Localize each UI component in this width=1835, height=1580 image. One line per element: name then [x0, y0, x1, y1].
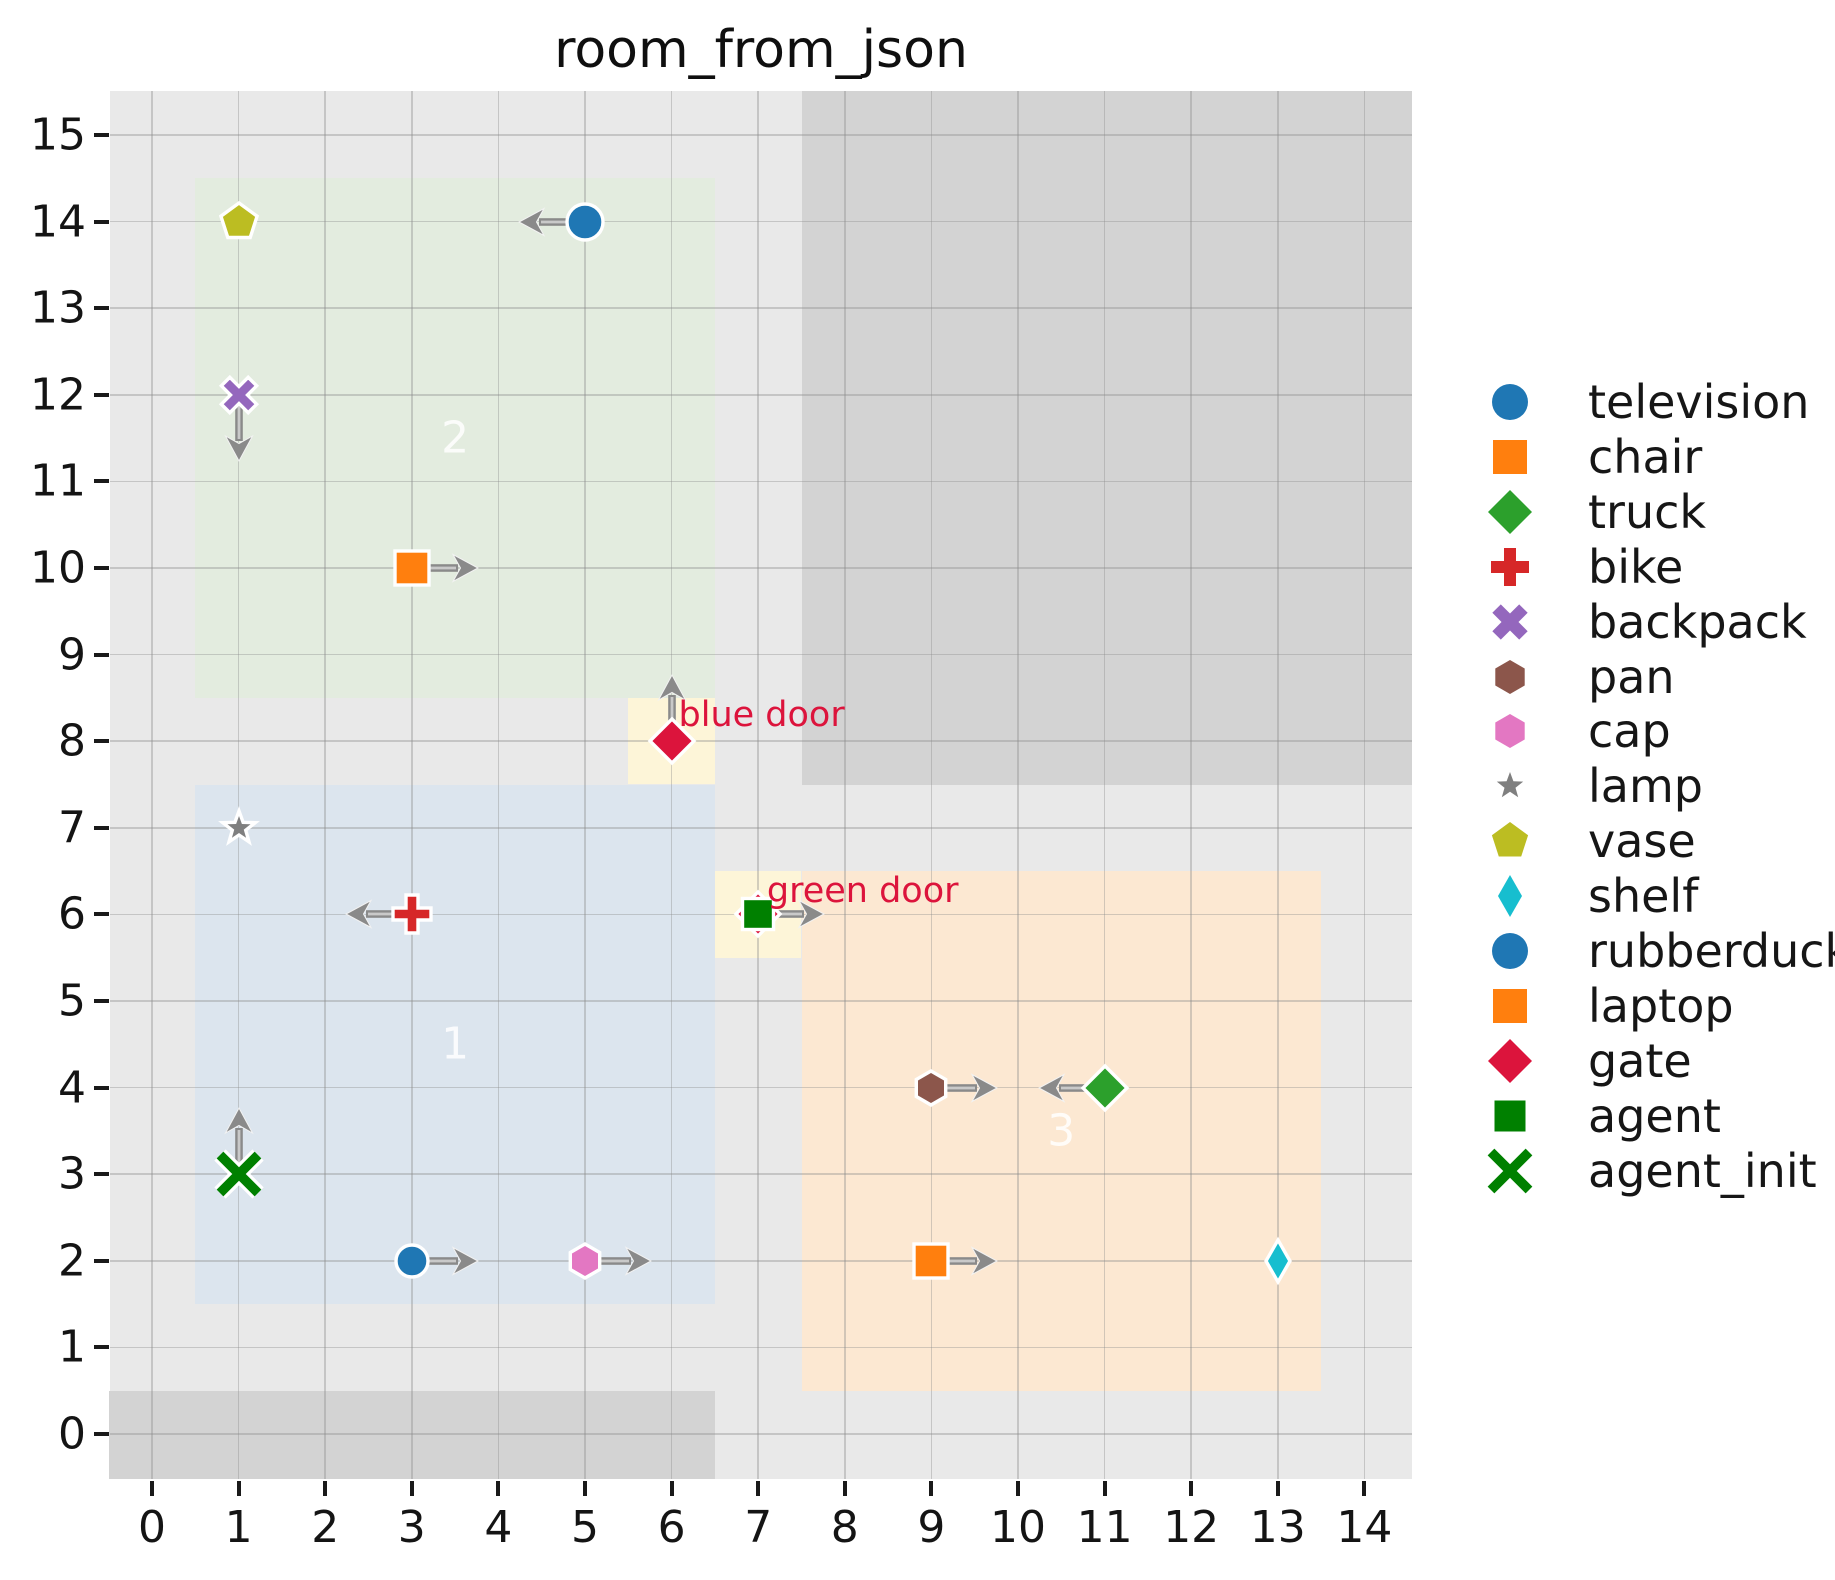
gridline-y: [110, 481, 1412, 483]
agent-legend-marker-icon: [1480, 1086, 1540, 1146]
marker-bike: [382, 884, 442, 944]
x-tick-label: 11: [1077, 1502, 1133, 1553]
legend: televisionchairtruckbikebackpackpancapla…: [1470, 0, 1835, 1580]
bike-legend-marker-icon: [1480, 537, 1540, 597]
y-tick-label: 9: [0, 629, 86, 680]
marker-backpack: [209, 365, 269, 425]
marker-rubberduck: [382, 1231, 442, 1291]
door-label: blue door: [679, 695, 845, 735]
y-tickmark: [94, 739, 109, 743]
room-label-1: 1: [441, 1019, 469, 1070]
laptop-legend-marker-icon: [1480, 976, 1540, 1036]
y-tick-label: 15: [0, 110, 86, 161]
y-tickmark: [94, 1172, 109, 1176]
x-tick-label: 1: [225, 1502, 253, 1553]
marker-cap: [555, 1231, 615, 1291]
shelf-legend-marker-icon: [1480, 866, 1540, 926]
gridline-y: [110, 1173, 1412, 1175]
legend-label: rubberduck: [1588, 924, 1835, 978]
television-legend-marker-icon: [1480, 372, 1540, 432]
gridline-x: [324, 91, 326, 1479]
x-tick-label: 6: [658, 1502, 686, 1553]
y-tickmark: [94, 1086, 109, 1090]
room-label-2: 2: [441, 413, 469, 464]
y-tick-label: 3: [0, 1149, 86, 1200]
legend-label: shelf: [1588, 869, 1698, 923]
y-tickmark: [94, 220, 109, 224]
y-tick-label: 7: [0, 802, 86, 853]
y-tickmark: [94, 306, 109, 310]
x-tickmark: [323, 1481, 327, 1496]
x-tickmark: [929, 1481, 933, 1496]
room-label-3: 3: [1047, 1105, 1075, 1156]
plot-area: 213: [110, 91, 1412, 1479]
legend-label: backpack: [1588, 595, 1807, 649]
marker-shelf: [1248, 1231, 1308, 1291]
gridline-x: [151, 91, 153, 1479]
y-tick-label: 1: [0, 1322, 86, 1373]
chart-title: room_from_json: [110, 20, 1412, 80]
legend-item-shelf: shelf: [1480, 868, 1698, 924]
gridline-y: [110, 307, 1412, 309]
legend-item-vase: vase: [1480, 813, 1696, 869]
y-tickmark: [94, 912, 109, 916]
y-tick-label: 8: [0, 716, 86, 767]
y-tick-label: 13: [0, 283, 86, 334]
x-tickmark: [1016, 1481, 1020, 1496]
gridline-y: [110, 827, 1412, 829]
legend-label: laptop: [1588, 979, 1734, 1033]
x-tick-label: 2: [311, 1502, 339, 1553]
gridline-y: [110, 1087, 1412, 1089]
marker-television: [555, 192, 615, 252]
backpack-legend-marker-icon: [1480, 592, 1540, 652]
gridline-x: [757, 91, 759, 1479]
x-tickmark: [1362, 1481, 1366, 1496]
y-tickmark: [94, 826, 109, 830]
legend-item-agent: agent: [1480, 1088, 1721, 1144]
legend-label: vase: [1588, 814, 1696, 868]
marker-lamp: [209, 798, 269, 858]
x-tickmark: [583, 1481, 587, 1496]
x-tickmark: [670, 1481, 674, 1496]
legend-label: lamp: [1588, 759, 1703, 813]
truck-legend-marker-icon: [1480, 482, 1540, 542]
legend-label: cap: [1588, 704, 1671, 758]
legend-item-agent_init: agent_init: [1480, 1143, 1817, 1199]
legend-label: agent_init: [1588, 1144, 1817, 1198]
y-tick-label: 0: [0, 1409, 86, 1460]
legend-item-cap: cap: [1480, 703, 1671, 759]
x-tick-label: 12: [1163, 1502, 1219, 1553]
y-tickmark: [94, 653, 109, 657]
x-tick-label: 4: [484, 1502, 512, 1553]
y-tick-label: 6: [0, 889, 86, 940]
legend-item-lamp: lamp: [1480, 758, 1703, 814]
gridline-x: [238, 91, 240, 1479]
legend-item-gate: gate: [1480, 1033, 1692, 1089]
legend-item-bike: bike: [1480, 539, 1683, 595]
x-tick-label: 9: [917, 1502, 945, 1553]
legend-item-laptop: laptop: [1480, 978, 1734, 1034]
legend-label: pan: [1588, 650, 1675, 704]
x-tickmark: [496, 1481, 500, 1496]
legend-label: bike: [1588, 540, 1683, 594]
x-tick-label: 10: [990, 1502, 1046, 1553]
y-tick-label: 2: [0, 1235, 86, 1286]
marker-chair: [382, 538, 442, 598]
y-tick-label: 12: [0, 369, 86, 420]
marker-vase: [209, 192, 269, 252]
legend-item-television: television: [1480, 374, 1809, 430]
x-tickmark: [1189, 1481, 1193, 1496]
y-tickmark: [94, 133, 109, 137]
gridline-y: [110, 134, 1412, 136]
lamp-legend-marker-icon: [1480, 756, 1540, 816]
legend-label: agent: [1588, 1089, 1721, 1143]
legend-label: television: [1588, 375, 1809, 429]
y-tickmark: [94, 1345, 109, 1349]
x-tickmark: [237, 1481, 241, 1496]
gridline-y: [110, 1000, 1412, 1002]
agent_init-legend-marker-icon: [1480, 1141, 1540, 1201]
y-tick-label: 5: [0, 976, 86, 1027]
x-tickmark: [756, 1481, 760, 1496]
y-tick-label: 4: [0, 1062, 86, 1113]
legend-item-chair: chair: [1480, 429, 1702, 485]
gridline-y: [110, 1347, 1412, 1349]
vase-legend-marker-icon: [1480, 811, 1540, 871]
gridline-y: [110, 394, 1412, 396]
gridline-x: [498, 91, 500, 1479]
rubberduck-legend-marker-icon: [1480, 921, 1540, 981]
y-tickmark: [94, 1432, 109, 1436]
legend-label: chair: [1588, 430, 1702, 484]
x-tickmark: [843, 1481, 847, 1496]
y-tickmark: [94, 1259, 109, 1263]
gridline-y: [110, 740, 1412, 742]
gridline-y: [110, 221, 1412, 223]
gridline-x: [1364, 91, 1366, 1479]
legend-item-rubberduck: rubberduck: [1480, 923, 1835, 979]
legend-label: truck: [1588, 485, 1706, 539]
y-tick-label: 10: [0, 543, 86, 594]
gridline-y: [110, 567, 1412, 569]
marker-truck: [1075, 1058, 1135, 1118]
chair-legend-marker-icon: [1480, 427, 1540, 487]
gate-legend-marker-icon: [1480, 1031, 1540, 1091]
x-tick-label: 14: [1336, 1502, 1392, 1553]
marker-pan: [901, 1058, 961, 1118]
gridline-x: [844, 91, 846, 1479]
y-tickmark: [94, 479, 109, 483]
y-tick-label: 11: [0, 456, 86, 507]
x-tick-label: 8: [831, 1502, 859, 1553]
marker-agent_init: [209, 1144, 269, 1204]
figure-canvas: room_from_json 213: [0, 0, 1835, 1580]
legend-item-truck: truck: [1480, 484, 1706, 540]
legend-item-backpack: backpack: [1480, 594, 1807, 650]
gridline-x: [671, 91, 673, 1479]
gridline-y: [110, 654, 1412, 656]
x-tickmark: [150, 1481, 154, 1496]
x-tick-label: 0: [138, 1502, 166, 1553]
x-tick-label: 5: [571, 1502, 599, 1553]
y-tickmark: [94, 393, 109, 397]
marker-laptop: [901, 1231, 961, 1291]
gridline-y: [110, 1433, 1412, 1435]
x-tickmark: [1103, 1481, 1107, 1496]
door-label: green door: [767, 871, 959, 911]
legend-label: gate: [1588, 1034, 1692, 1088]
y-tickmark: [94, 566, 109, 570]
x-tick-label: 13: [1250, 1502, 1306, 1553]
cap-legend-marker-icon: [1480, 701, 1540, 761]
x-tickmark: [410, 1481, 414, 1496]
y-tick-label: 14: [0, 196, 86, 247]
x-tick-label: 3: [398, 1502, 426, 1553]
gridline-y: [110, 1260, 1412, 1262]
wall-top-right: [802, 91, 1413, 785]
gridline-x: [1104, 91, 1106, 1479]
gridline-x: [1190, 91, 1192, 1479]
gridline-x: [1017, 91, 1019, 1479]
y-tickmark: [94, 999, 109, 1003]
pan-legend-marker-icon: [1480, 647, 1540, 707]
x-tick-label: 7: [744, 1502, 772, 1553]
legend-item-pan: pan: [1480, 649, 1675, 705]
x-tickmark: [1276, 1481, 1280, 1496]
